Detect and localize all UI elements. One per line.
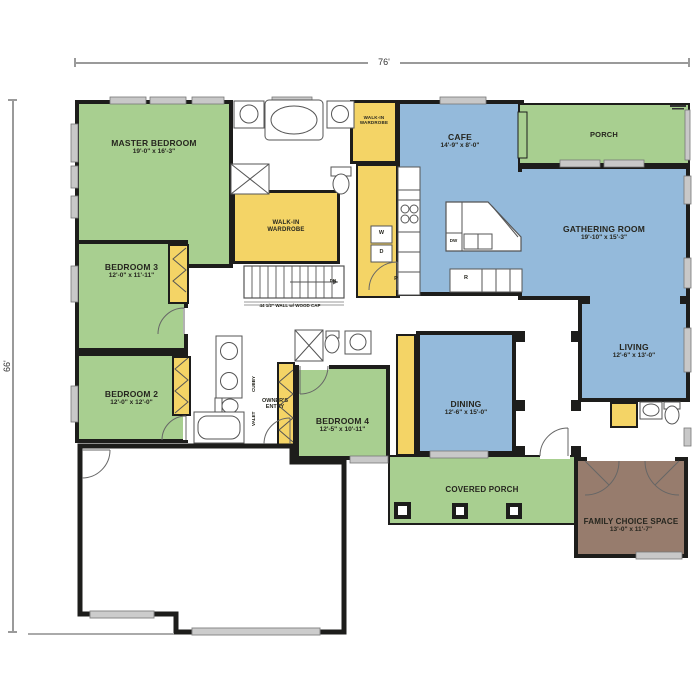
room-label: MASTER BEDROOM [111,138,196,148]
porch-column [506,503,522,519]
stairs [244,266,344,305]
column [571,446,581,457]
stairs-wall-note: 44 1/2" WALL w/ WOOD CAP [238,303,342,308]
room-label: WALK-IN WARDROBE [357,115,391,126]
wall-opening [183,308,190,334]
closet-bedroom-3 [168,244,189,304]
dimension-tick [8,99,17,101]
room-size: 19'-0" x 16'-3" [133,148,176,156]
room-walk-in-wardrobe-master: WALK-IN WARDROBE [232,190,340,264]
room-label: WALK-IN WARDROBE [254,220,318,234]
wall-opening [183,416,190,440]
bathtub-symbol [265,100,323,140]
stairs-direction-label: DN [326,278,340,283]
floor-plan: 76' 66' MASTER BEDROOM 19'-0" x 16'-3" B… [0,0,700,700]
toilet-symbol [215,398,222,414]
vanity-sink-symbol [345,331,371,354]
room-dining: DINING 12'-6" x 15'-0" [416,331,516,455]
closet-bedroom-4-right [396,334,416,456]
room-living: LIVING 12'-6" x 13'-0" [578,300,690,402]
cubby-label: CUBBY [251,370,261,398]
room-label: BEDROOM 2 [105,389,158,399]
dimension-tick [8,631,17,633]
column [515,400,525,411]
closet-bedroom-4-left [277,362,295,460]
vanity-sink-symbol [216,336,242,398]
room-label: BEDROOM 3 [105,262,158,272]
wall-opening [512,172,526,290]
room-label: BEDROOM 4 [316,416,369,426]
room-garage: GARAGE 33'-4" x 23'-7" [175,522,335,556]
vanity-sink-symbol [640,402,662,419]
room-bedroom-4: BEDROOM 4 12'-5" x 10'-11" [295,365,390,460]
garage-door [192,628,320,635]
dimension-label-width: 76' [368,57,400,67]
porch-column [452,503,468,519]
dryer-label: D [371,249,392,255]
dimension-line-left [12,100,14,632]
room-gathering: GATHERING ROOM 19'-10" x 15'-3" [518,165,690,300]
front-door [540,428,568,456]
room-size: 12'-5" x 10'-11" [320,426,366,434]
room-size: 19'-10" x 15'-3" [581,234,627,242]
column [571,400,581,411]
room-size: 12'-0" x 11'-11" [109,272,154,280]
room-label: LIVING [619,342,649,352]
bed4-bath-fixtures [295,330,371,361]
pantry-label: P [388,276,404,282]
refrigerator-label: R [450,275,482,281]
garage-entry-door [82,450,110,478]
room-size: 12'-6" x 13'-0" [613,352,656,360]
wall-opening [587,455,675,461]
toilet-symbol [326,331,339,338]
room-size: 12'-6" x 15'-0" [445,409,488,417]
porch-column [394,502,411,519]
column [515,446,525,457]
column [515,331,525,342]
room-label: CAFE [448,132,472,142]
room-label: GARAGE [236,530,275,540]
dishwasher-label: DW [446,238,461,243]
wall-opening [77,450,83,478]
wall-opening [299,363,329,370]
dimension-tick [688,58,690,67]
washer-label: W [371,230,392,236]
dimension-tick [74,58,76,67]
bathtub-symbol [194,412,244,443]
bifold-doors [173,248,293,442]
dimension-label-height: 66' [2,352,12,380]
closet-powder [610,402,638,428]
room-label: COVERED PORCH [445,485,518,495]
garage-door [90,611,154,618]
toilet-symbol [331,167,351,176]
room-label: FAMILY CHOICE SPACE [584,517,679,527]
room-walk-in-wardrobe-small: WALK-IN WARDROBE [350,100,398,164]
wall-opening [590,294,680,306]
room-cafe: CAFE 14'-9" x 8'-0" [396,100,524,296]
vanity-sink-symbol [234,101,264,128]
valet-label: VALET [251,406,261,432]
room-porch: PORCH [518,103,690,165]
shower-symbol [295,330,323,361]
column [571,331,581,342]
powder-bath-fixtures [640,402,680,424]
room-size: 12'-0" x 12'-0" [110,399,153,407]
room-size: 14'-9" x 8'-0" [441,142,480,150]
master-bath-fixtures [231,100,354,194]
room-size: 33'-4" x 23'-7" [234,540,277,548]
room-covered-porch: COVERED PORCH [388,455,576,525]
wall-opening [540,454,570,459]
toilet-symbol [664,402,680,409]
room-family-choice-space: FAMILY CHOICE SPACE 13'-0" x 11'-7" [574,457,688,558]
room-label: PORCH [590,130,618,139]
room-label: DINING [451,399,482,409]
closet-bedroom-2 [172,356,191,416]
room-size: 13'-0" x 11'-7" [610,526,652,534]
room-label: GATHERING ROOM [563,224,645,234]
hall-bath-fixtures [194,336,244,443]
